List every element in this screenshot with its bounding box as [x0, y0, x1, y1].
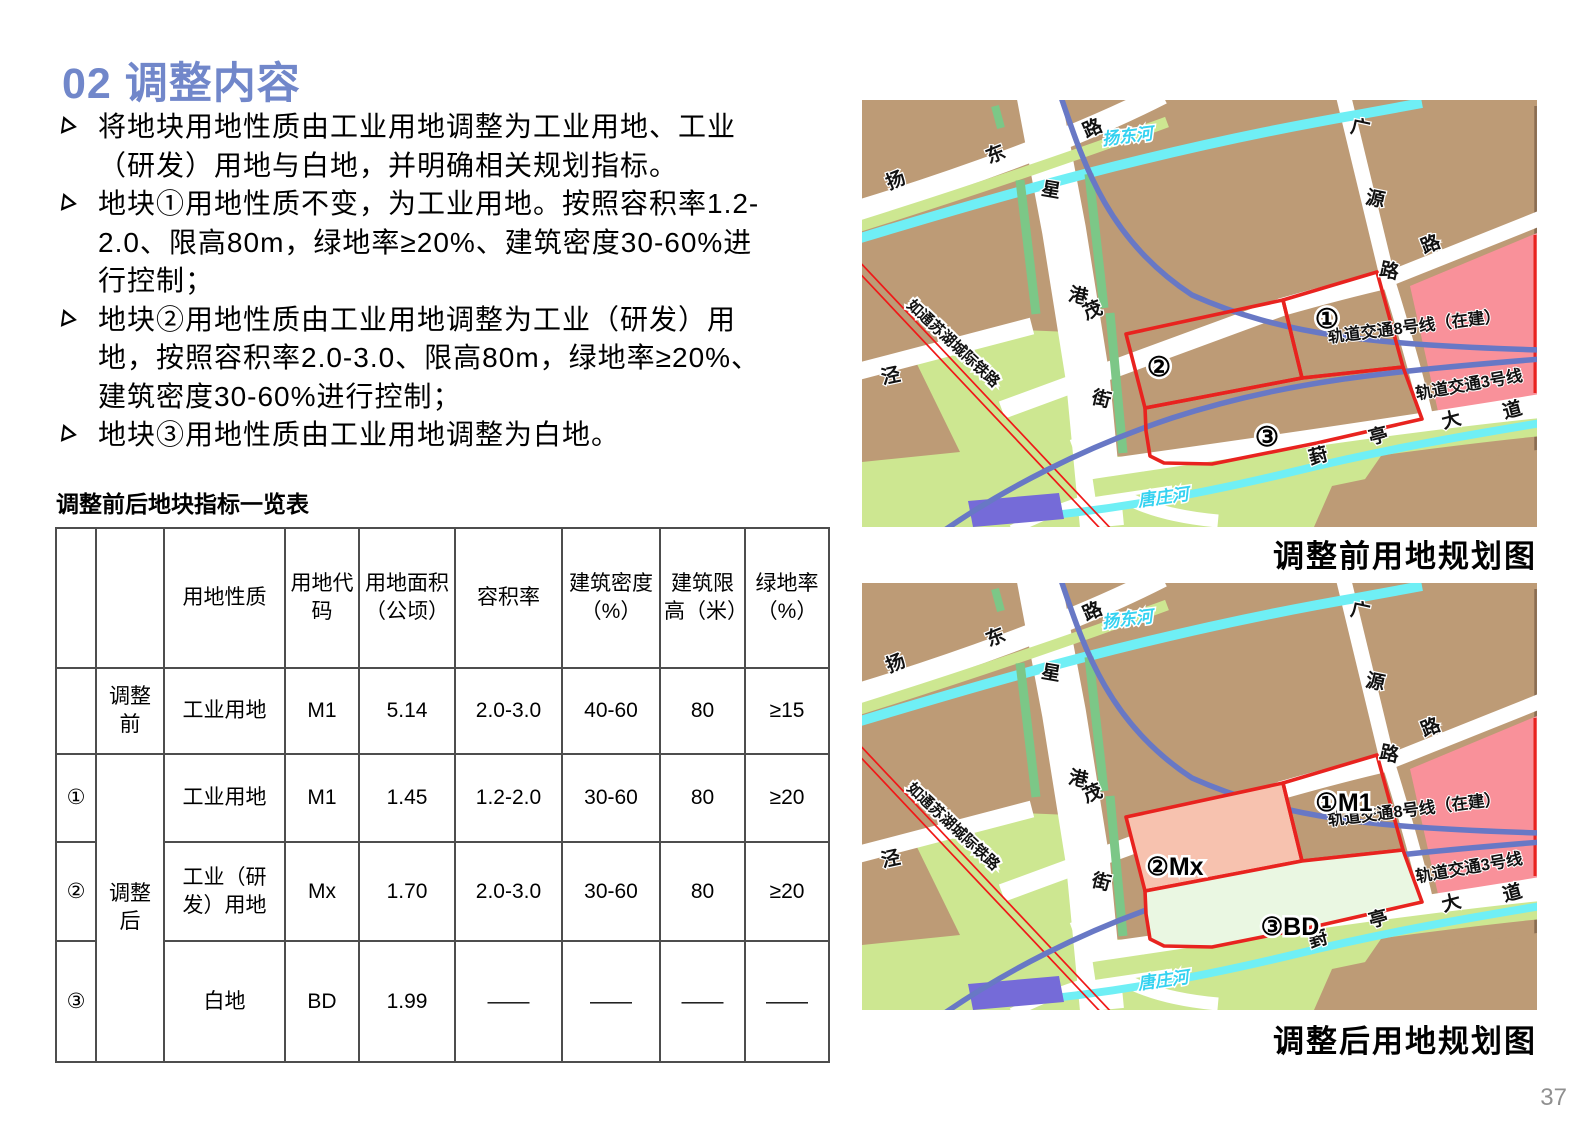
bullet-item-4: 地块③用地性质由工业用地调整为白地。: [62, 416, 774, 455]
spec-table: 用地性质用地代码用地面积（公顷）容积率建筑密度（%）建筑限高（米）绿地率（%）调…: [55, 527, 830, 1063]
bullet-item-2: 地块①用地性质不变，为工业用地。按照容积率1.2-2.0、限高80m，绿地率≥2…: [62, 185, 774, 301]
header-cell: 容积率: [455, 528, 562, 668]
table-cell: ≥20: [745, 754, 829, 842]
parcel-label: ①: [1315, 304, 1339, 334]
header-cell: 建筑限高（米）: [660, 528, 745, 668]
plan-map-after: 扬东路星港街茂路广源路泾葑亭大道如通苏湖城际铁路轨道交通8号线（在建）轨道交通3…: [862, 583, 1537, 1010]
table-cell: 2.0-3.0: [455, 842, 562, 941]
table-cell: 工业（研发）用地: [164, 842, 285, 941]
table-title: 调整前后地块指标一览表: [56, 485, 309, 519]
table-cell: ②: [56, 842, 96, 941]
parcel-label: ③BD: [1261, 913, 1320, 941]
table-cell: 30-60: [562, 754, 660, 842]
table-cell: 1.2-2.0: [455, 754, 562, 842]
bullet-text: 地块③用地性质由工业用地调整为白地。: [98, 419, 620, 450]
table-cell: [56, 668, 96, 754]
bullet-text: 地块①用地性质不变，为工业用地。按照容积率1.2-2.0、限高80m，绿地率≥2…: [98, 188, 759, 296]
table-cell: ——: [745, 941, 829, 1062]
table-cell: ≥20: [745, 842, 829, 941]
plan-map-before: 扬东路星港街茂路广源路泾葑亭大道如通苏湖城际铁路轨道交通8号线（在建）轨道交通3…: [862, 100, 1537, 527]
table-cell: 调整前: [96, 668, 164, 754]
table-cell: BD: [285, 941, 359, 1062]
table-row: ①调整后工业用地M11.451.2-2.030-6080≥20: [56, 754, 829, 842]
table-cell: 白地: [164, 941, 285, 1062]
header-cell: 绿地率（%）: [745, 528, 829, 668]
parcel-label: ②: [1147, 352, 1171, 382]
table-cell: 工业用地: [164, 668, 285, 754]
header-cell: 用地性质: [164, 528, 285, 668]
page-number: 37: [1540, 1084, 1567, 1112]
header-cell: [56, 528, 96, 668]
road-name-char: 星: [1040, 178, 1063, 203]
table-cell: 30-60: [562, 842, 660, 941]
caption-after: 调整后用地规划图: [1050, 1016, 1537, 1061]
table-cell: 工业用地: [164, 754, 285, 842]
table-cell: M1: [285, 754, 359, 842]
table-cell: ③: [56, 941, 96, 1062]
table-row: ③白地BD1.99————————: [56, 941, 829, 1062]
table-cell: 5.14: [359, 668, 455, 754]
table-cell: 1.70: [359, 842, 455, 941]
table-cell: Mx: [285, 842, 359, 941]
bullet-text: 地块②用地性质由工业用地调整为工业（研发）用地，按照容积率2.0-3.0、限高8…: [98, 304, 760, 412]
bullet-list: 将地块用地性质由工业用地调整为工业用地、工业（研发）用地与白地，并明确相关规划指…: [62, 108, 774, 455]
parcel-label: ②Mx: [1146, 853, 1203, 881]
table-cell: 80: [660, 754, 745, 842]
table-cell: 80: [660, 668, 745, 754]
table-cell: ——: [455, 941, 562, 1062]
table-cell: 调整后: [96, 754, 164, 1062]
table-cell: 2.0-3.0: [455, 668, 562, 754]
table-header-row: 用地性质用地代码用地面积（公顷）容积率建筑密度（%）建筑限高（米）绿地率（%）: [56, 528, 829, 668]
map-after-plan: 扬东路星港街茂路广源路泾葑亭大道如通苏湖城际铁路轨道交通8号线（在建）轨道交通3…: [862, 583, 1537, 1010]
header-cell: 用地面积（公顷）: [359, 528, 455, 668]
header-cell: [96, 528, 164, 668]
table-cell: 1.45: [359, 754, 455, 842]
table-cell: ——: [562, 941, 660, 1062]
table-cell: 80: [660, 842, 745, 941]
bullet-text: 将地块用地性质由工业用地调整为工业用地、工业（研发）用地与白地，并明确相关规划指…: [98, 111, 736, 181]
road-name-char: 星: [1040, 661, 1063, 686]
caption-before: 调整前用地规划图: [1050, 531, 1537, 576]
map-before-plan: 扬东路星港街茂路广源路泾葑亭大道如通苏湖城际铁路轨道交通8号线（在建）轨道交通3…: [862, 100, 1537, 527]
table-row: ②工业（研发）用地Mx1.702.0-3.030-6080≥20: [56, 842, 829, 941]
bullet-item-1: 将地块用地性质由工业用地调整为工业用地、工业（研发）用地与白地，并明确相关规划指…: [62, 108, 774, 185]
bullet-item-3: 地块②用地性质由工业用地调整为工业（研发）用地，按照容积率2.0-3.0、限高8…: [62, 301, 774, 417]
parcel-label: ①M1: [1315, 789, 1372, 817]
bullet-arrow-icon: [61, 309, 78, 329]
table-body: 用地性质用地代码用地面积（公顷）容积率建筑密度（%）建筑限高（米）绿地率（%）调…: [56, 528, 829, 1062]
page-title: 02 调整内容: [62, 49, 301, 111]
table-cell: 40-60: [562, 668, 660, 754]
bullet-arrow-icon: [61, 424, 78, 444]
table-row: 调整前工业用地M15.142.0-3.040-6080≥15: [56, 668, 829, 754]
header-cell: 用地代码: [285, 528, 359, 668]
table-cell: ①: [56, 754, 96, 842]
bullet-arrow-icon: [61, 116, 78, 136]
header-cell: 建筑密度（%）: [562, 528, 660, 668]
bullet-arrow-icon: [61, 193, 78, 213]
table-cell: M1: [285, 668, 359, 754]
table-cell: ≥15: [745, 668, 829, 754]
table-cell: 1.99: [359, 941, 455, 1062]
table-cell: ——: [660, 941, 745, 1062]
parcel-label: ③: [1255, 422, 1279, 452]
